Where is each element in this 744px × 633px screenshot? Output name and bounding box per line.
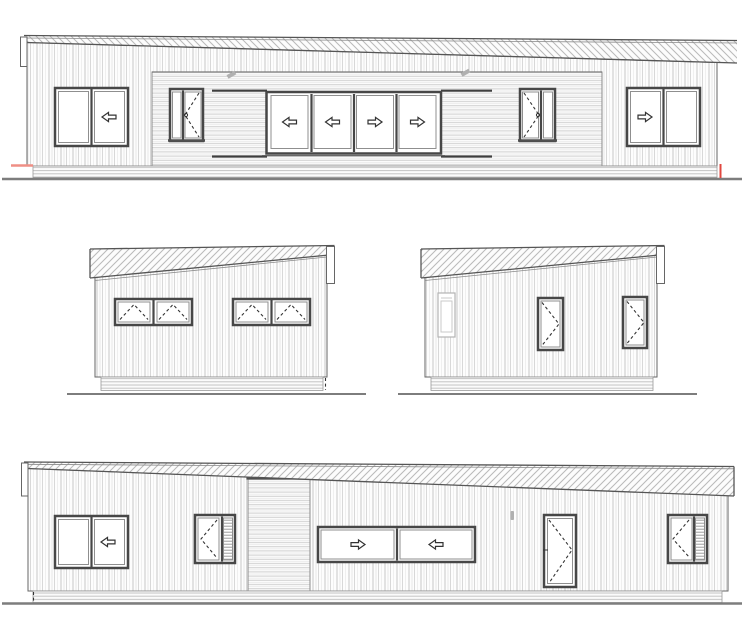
casement-window [623,297,647,348]
casement-window [538,298,563,350]
plinth [33,591,722,603]
left-roof-overhang [22,463,29,496]
hinged-door-right [518,89,557,141]
awning-window-pair [233,299,310,325]
elevation-bottom-long [2,462,742,604]
elevation-middle-right [398,246,697,395]
right-fascia-return [657,247,665,284]
flue-panel [438,293,455,337]
wide-sliding-window [318,527,475,562]
elevation-middle-left [67,246,366,395]
hinged-door [543,515,576,587]
right-fascia-return [327,247,335,284]
vent-mark-icon [511,511,515,520]
louvre-panel [224,518,233,560]
hinged-door-left [168,89,205,141]
elevation-top-long [2,36,742,180]
plinth [33,166,717,178]
plinth [101,377,323,391]
recessed-entry-strip [248,478,310,591]
awning-window-pair [115,299,192,325]
casement-louvre-window [195,515,235,563]
louvre-panel [696,518,705,560]
sliding-door-4-panel [262,92,445,156]
casement-louvre-window [668,515,707,563]
sliding-window-right [627,88,700,146]
left-roof-overhang [21,37,28,67]
sliding-window-left [55,88,128,146]
plinth [431,377,653,391]
sliding-window-left [55,516,128,568]
elevation-sheet [0,0,744,633]
